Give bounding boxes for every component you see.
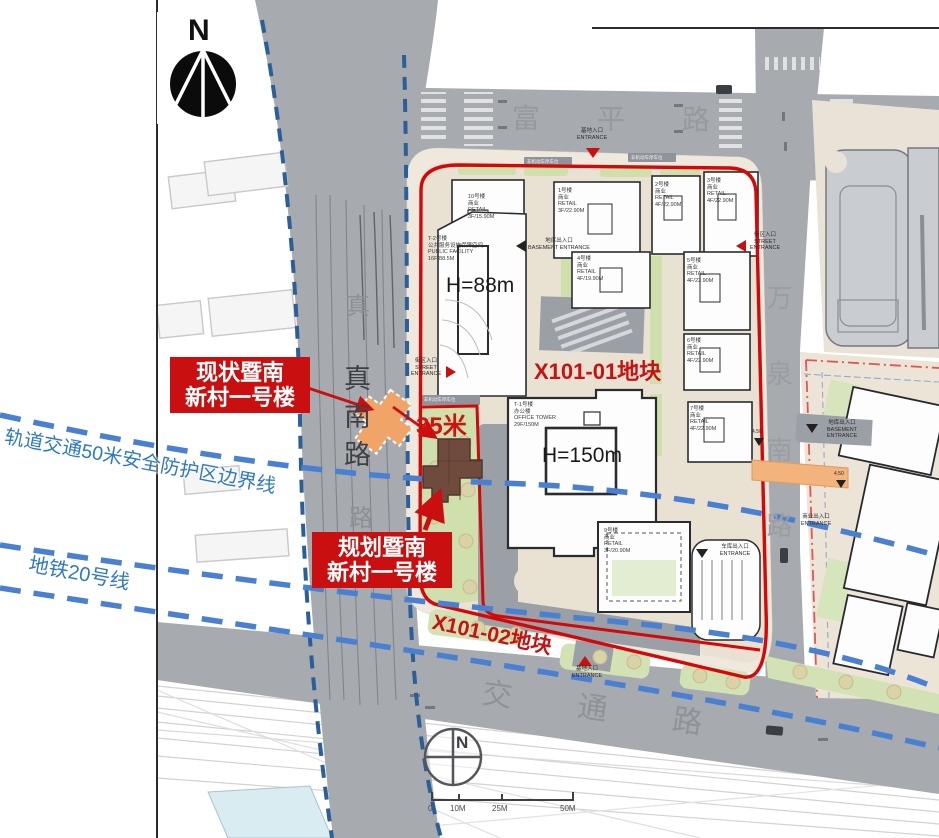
height-label-150m: H=150m [542,444,622,468]
road-char-lu-faint: 路 [349,498,373,533]
compass-icon [424,728,482,786]
building-label-b5: 5号楼 商业 RETAIL 4F/22.90M [687,258,713,284]
elevation-label-1: 4.50 [752,430,762,435]
map-canvas [0,0,939,838]
scale-tick-0: 0 [428,804,432,813]
parking-strip-label-2: 非机动车停车位 [631,153,663,162]
drive-island [514,566,588,596]
parking-strip-label-1: 非机动车停车位 [527,157,559,166]
callout-planned-line1: 规划暨南 [318,535,446,560]
road-name-zhennan: 真南路 [336,364,375,478]
building-label-b9: 9号楼 商业 RETAIL 3F/20.90M [604,528,630,554]
entrance-label-retail: 商业出入口ENTRANCE [790,514,842,527]
scale-tick-10m: 10M [450,804,466,813]
callout-planned-line2: 新村一号楼 [318,560,446,585]
road-name-fuping: 富平路 [512,97,767,139]
building-label-t1: T-1号楼 办公楼 OFFICE TOWER 29F/150M [514,402,556,428]
entrance-label-west: 街区入口STREET ENTRANCE [404,358,448,378]
site-plan-map: N 富平路 真南路 真 路 交通路 万泉南路 X101-01地块 X101-02… [0,0,939,838]
height-label-88m: H=88m [446,274,514,298]
entrance-label-east-block: 地库出入口BASEMENT ENTRANCE [814,420,870,440]
distance-label-35m: 35米 [416,406,467,441]
building-label-b10: 10号楼 商业 RETAIL 3F/15.90M [468,194,494,220]
elevation-label-2: 4.50 [834,472,844,477]
entrance-label-east: 街区入口STREET ENTRANCE [742,232,788,252]
callout-existing-line1: 现状暨南 [176,360,304,385]
building-label-b1: 1号楼 商业 RETAIL 3F/22.90M [558,188,584,214]
building-label-t2: T-2号楼 公共服务设施保障空间 PUBLIC FACILITY 16F/88.… [428,236,488,262]
entrance-label-garage: 车库出入口ENTRANCE [706,544,764,557]
scale-bar [432,792,573,800]
callout-planned-building: 规划暨南 新村一号楼 [312,532,452,588]
compass-north-label: N [456,733,468,753]
building-label-b2: 2号楼 商业 RETAIL 4F/22.90M [655,182,681,208]
north-arrow-label: N [188,14,210,48]
scale-tick-50m: 50M [560,804,576,813]
entrance-label-south: 基地入口ENTRANCE [564,666,610,679]
building-label-b7: 7号楼 商业 RETAIL 4F/22.90M [690,406,716,432]
callout-existing-building: 现状暨南 新村一号楼 [170,357,310,413]
building-label-b3: 3号楼 商业 RETAIL 4F/22.90M [707,178,733,204]
building-label-b6: 6号楼 商业 RETAIL 4F/22.90M [687,338,713,364]
parking-strip-label-3: 非机动车停车位 [424,395,456,404]
road-char-zhen-faint: 真 [346,286,370,321]
scale-tick-25m: 25M [492,804,508,813]
entrance-label-basement: 地库出入口BASEMENT ENTRANCE [528,238,590,251]
depot-building [825,148,939,348]
callout-existing-line2: 新村一号楼 [176,385,304,410]
pond-shape [208,786,332,838]
parcel-label-x101-01: X101-01地块 [534,354,661,386]
road-name-wanquan: 万泉南路 [760,284,797,588]
entrance-label-north: 基地入口ENTRANCE [568,128,616,141]
building-label-b4: 4号楼 商业 RETAIL 4F/19.90M [577,256,603,282]
